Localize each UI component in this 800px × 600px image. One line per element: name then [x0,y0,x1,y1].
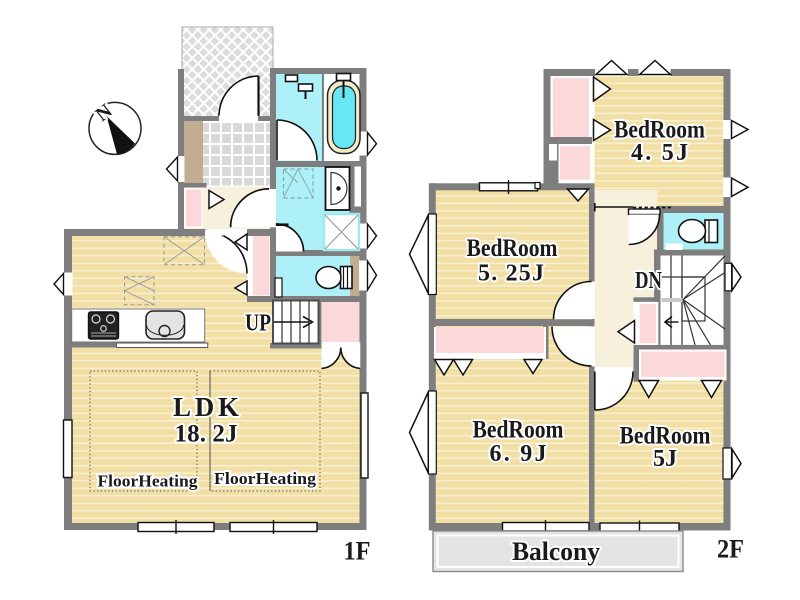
svg-text:1F: 1F [344,537,371,566]
svg-text:2F: 2F [717,535,744,564]
svg-text:5J: 5J [653,446,677,472]
svg-text:UP: UP [245,311,271,337]
svg-text:FloorHeating: FloorHeating [214,469,317,488]
svg-text:18. 2J: 18. 2J [175,421,238,448]
svg-text:Balcony: Balcony [512,537,600,566]
svg-text:FloorHeating: FloorHeating [98,472,199,491]
svg-text:DN: DN [635,268,663,294]
svg-text:BedRoom: BedRoom [467,235,558,262]
svg-text:LDK: LDK [173,392,239,422]
svg-text:BedRoom: BedRoom [473,417,564,444]
svg-text:BedRoom: BedRoom [614,117,705,144]
svg-text:5. 25J: 5. 25J [478,261,544,287]
